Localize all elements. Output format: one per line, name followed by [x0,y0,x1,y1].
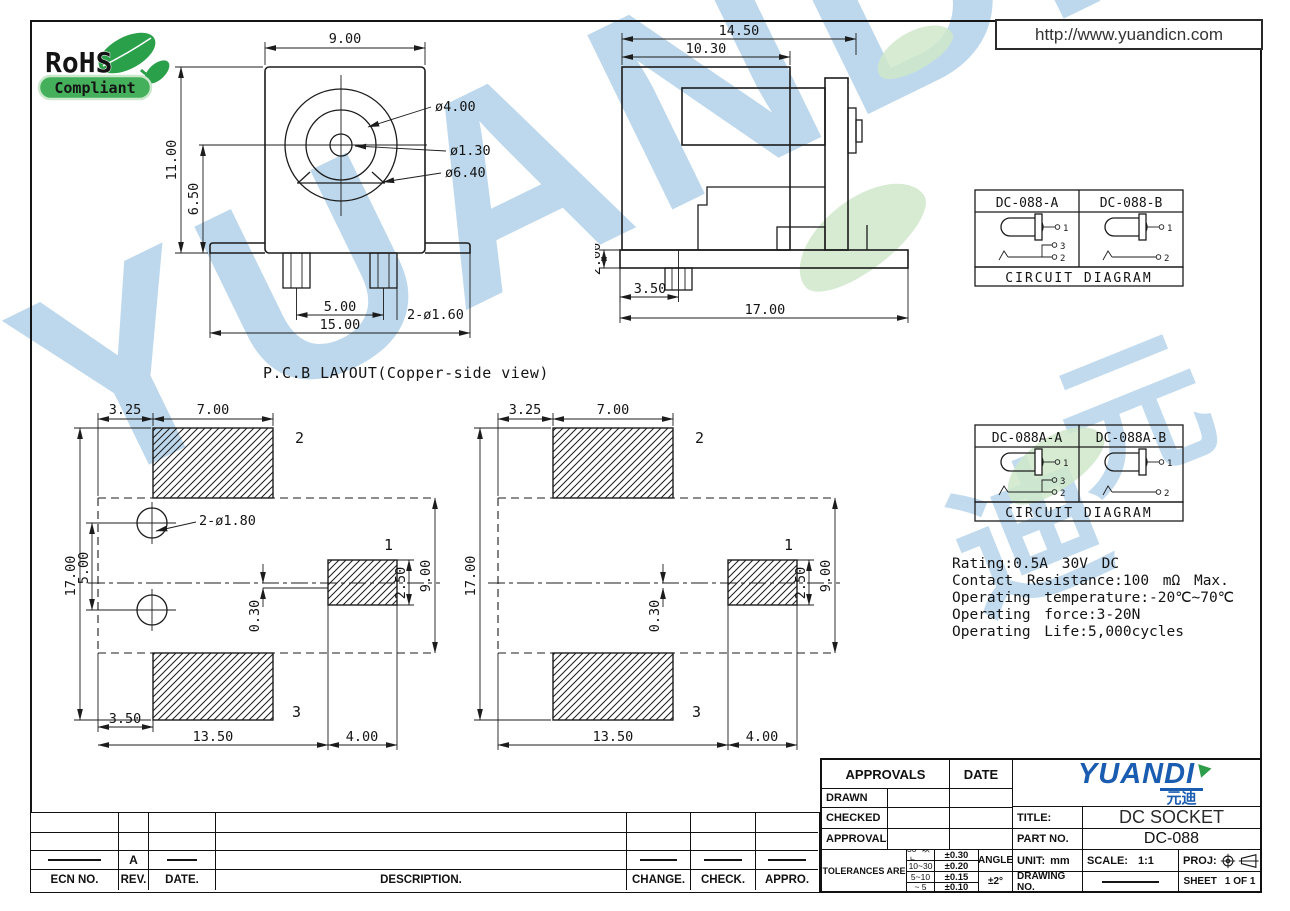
svg-text:2: 2 [295,429,304,447]
brand-cjk: 元迪 [1160,788,1202,806]
front-view-outline [199,67,470,288]
brand-logo: YUANDI 元迪 [1013,760,1260,807]
date-dash [149,851,216,870]
brand-name: YUANDI [1078,760,1195,790]
svg-text:5.00: 5.00 [324,299,357,315]
plug-symbol-a: 1 3 2 [999,449,1068,499]
spec-line: Operating temperature:-20℃~70℃ [952,590,1282,607]
change-dash [627,851,691,870]
pcb-layout-caption: P.C.B LAYOUT(Copper-side view) [263,364,549,382]
rev-cell [149,833,216,851]
plug-symbol-b: 1 2 [1103,214,1172,264]
ecn-header: ECN NO. [31,870,119,890]
svg-text:10.30: 10.30 [686,41,727,57]
svg-text:4.00: 4.00 [346,729,379,745]
svg-text:0.30: 0.30 [247,600,263,633]
svg-text:ø4.00: ø4.00 [435,99,476,115]
rev-cell [627,833,691,851]
svg-text:15.00: 15.00 [320,317,361,333]
svg-text:2.00: 2.00 [595,243,604,276]
svg-text:1: 1 [784,536,793,554]
pcb1-pads: 2 1 3 [153,428,397,721]
plug-symbol-a: 1 3 2 [999,214,1068,264]
svg-text:3.50: 3.50 [109,711,142,727]
svg-text:11.00: 11.00 [164,140,180,181]
svg-text:0.30: 0.30 [647,600,663,633]
svg-text:3: 3 [292,703,301,721]
svg-text:14.50: 14.50 [719,25,760,39]
approvals-value [888,829,950,850]
svg-text:13.50: 13.50 [593,729,634,745]
circuit-caption: CIRCUIT DIAGRAM [1005,271,1152,286]
drawing-sheet: YUANDI 元 迪 RoHS Compliant http://www.yua… [0,0,1290,911]
svg-text:9.00: 9.00 [818,560,834,593]
svg-text:1: 1 [384,536,393,554]
tol-value-1: ±0.30 [935,850,979,861]
spec-line: Contact Resistance:100 mΩ Max. [952,573,1282,590]
rev-cell [149,813,216,833]
title-value: DC SOCKET [1083,807,1260,829]
svg-text:5.00: 5.00 [76,552,92,585]
svg-text:7.00: 7.00 [197,402,230,418]
change-header: CHANGE. [627,870,691,890]
drawn-label: DRAWN [822,789,888,808]
pcb-layout-1: 2 1 3 2-ø1.80 3.25 7.00 [58,400,463,760]
svg-text:1: 1 [1167,459,1172,469]
svg-text:ø6.40: ø6.40 [445,165,486,181]
svg-text:1: 1 [1063,224,1068,234]
svg-text:13.50: 13.50 [193,729,234,745]
svg-text:3: 3 [1060,477,1065,487]
svg-text:9.00: 9.00 [329,31,362,47]
tol-range-2: 10~30 [907,861,935,872]
svg-text:6.50: 6.50 [186,183,202,216]
third-angle-projection-icon [1219,852,1260,870]
drawn-value [888,789,950,808]
pcb-layout-2: 2 1 3 3.25 7.00 17.00 9.00 [458,400,863,760]
svg-text:ø1.30: ø1.30 [450,143,491,159]
svg-text:7.00: 7.00 [597,402,630,418]
svg-text:2: 2 [1060,254,1065,264]
tol-value-3: ±0.15 [935,872,979,883]
svg-text:2: 2 [695,429,704,447]
side-view-outline [620,67,908,290]
approvals-label: APPROVALS [822,829,888,850]
circuit-diagram-1: DC-088-A DC-088-B CIRCUIT DIAGRAM 1 3 2 … [973,188,1185,288]
spec-line: Rating:0.5A 30V DC [952,556,1282,573]
drawing-no-label: DRAWING NO. [1013,872,1083,891]
sheet-cell: SHEET1 OF 1 [1179,872,1260,891]
rev-cell [119,813,149,833]
rev-cell [216,813,627,833]
tol-value-4: ±0.10 [935,883,979,891]
title-label: TITLE: [1013,807,1083,829]
check-header: CHECK. [691,870,756,890]
model-b-label: DC-088-B [1100,196,1163,211]
rev-cell [756,813,818,833]
front-view-dimensions: 9.00 11.00 6.50 ø4.00 ø1.30 ø6.40 5.00 2… [164,31,491,338]
tol-range-4: ~ 5 [907,883,935,891]
check-dash [691,851,756,870]
part-no-value: DC-088 [1083,829,1260,850]
drawing-no-value [1083,872,1179,891]
checked-value [888,808,950,829]
svg-text:2: 2 [1164,254,1169,264]
svg-text:1: 1 [1063,459,1068,469]
svg-text:17.00: 17.00 [463,556,479,597]
scale-cell: SCALE:1:1 [1083,850,1179,872]
description-cell [216,851,627,870]
angle-label: ANGLE [979,850,1013,872]
title-block: APPROVALS DATE DRAWN CHECKED APPROVALS T… [820,758,1262,893]
svg-text:2: 2 [1164,489,1169,499]
tolerances-label: TOLERANCES ARE [822,850,907,891]
rev-header: REV. [119,870,149,890]
revision-table: A ECN NO. REV. DATE. DESCRIPTION. CHANGE… [30,812,820,893]
checked-label: CHECKED [822,808,888,829]
svg-text:2.50: 2.50 [793,567,809,600]
svg-text:17.00: 17.00 [745,302,786,318]
tol-range-1: 30~以上 [907,850,935,861]
rev-cell [119,833,149,851]
unit-cell: UNIT:mm [1013,850,1083,872]
side-view-dimensions: 14.50 10.30 2.00 3.50 17.00 [595,25,908,323]
appro-header: APPRO. [756,870,818,890]
front-view-drawing: 9.00 11.00 6.50 ø4.00 ø1.30 ø6.40 5.00 2… [55,30,510,350]
electrical-specs: Rating:0.5A 30V DC Contact Resistance:10… [952,556,1282,641]
svg-text:2.50: 2.50 [393,567,409,600]
svg-text:2-ø1.60: 2-ø1.60 [407,307,464,323]
svg-text:3.25: 3.25 [109,402,142,418]
circuit-diagram-2: DC-088A-A DC-088A-B CIRCUIT DIAGRAM 1 3 … [973,423,1185,523]
model-a-label: DC-088A-A [992,431,1063,446]
side-view-drawing: 14.50 10.30 2.00 3.50 17.00 [595,25,925,340]
circuit-caption: CIRCUIT DIAGRAM [1005,506,1152,521]
company-url: http://www.yuandicn.com [995,19,1263,50]
part-no-label: PART NO. [1013,829,1083,850]
pcb2-pads: 2 1 3 [553,428,797,721]
ecn-dash [31,851,119,870]
description-header: DESCRIPTION. [216,870,627,890]
tol-value-2: ±0.20 [935,861,979,872]
date-header: DATE. [149,870,216,890]
rev-cell [756,833,818,851]
svg-text:3.50: 3.50 [634,281,667,297]
tol-range-3: 5~10 [907,872,935,883]
projection-cell: PROJ: [1179,850,1260,872]
rev-cell [31,813,119,833]
svg-text:3: 3 [692,703,701,721]
date-header: DATE [950,760,1013,789]
appro-dash [756,851,818,870]
svg-text:3.25: 3.25 [509,402,542,418]
rev-cell [31,833,119,851]
plug-symbol-b: 1 2 [1103,449,1172,499]
svg-text:2-ø1.80: 2-ø1.80 [199,513,256,529]
drawn-date [950,789,1013,808]
rev-cell [216,833,627,851]
brand-leaf-icon [1194,764,1211,780]
svg-text:1: 1 [1167,224,1172,234]
svg-text:9.00: 9.00 [418,560,434,593]
svg-text:2: 2 [1060,489,1065,499]
approvals-header: APPROVALS [822,760,950,789]
spec-line: Operating Life:5,000cycles [952,624,1282,641]
revision-letter: A [119,851,149,870]
angle-value: ±2° [979,872,1013,891]
model-a-label: DC-088-A [996,196,1059,211]
rev-cell [691,813,756,833]
model-b-label: DC-088A-B [1096,431,1167,446]
approvals-date [950,829,1013,850]
svg-text:3: 3 [1060,242,1065,252]
svg-text:4.00: 4.00 [746,729,779,745]
checked-date [950,808,1013,829]
spec-line: Operating force:3-20N [952,607,1282,624]
rev-cell [691,833,756,851]
rev-cell [627,813,691,833]
